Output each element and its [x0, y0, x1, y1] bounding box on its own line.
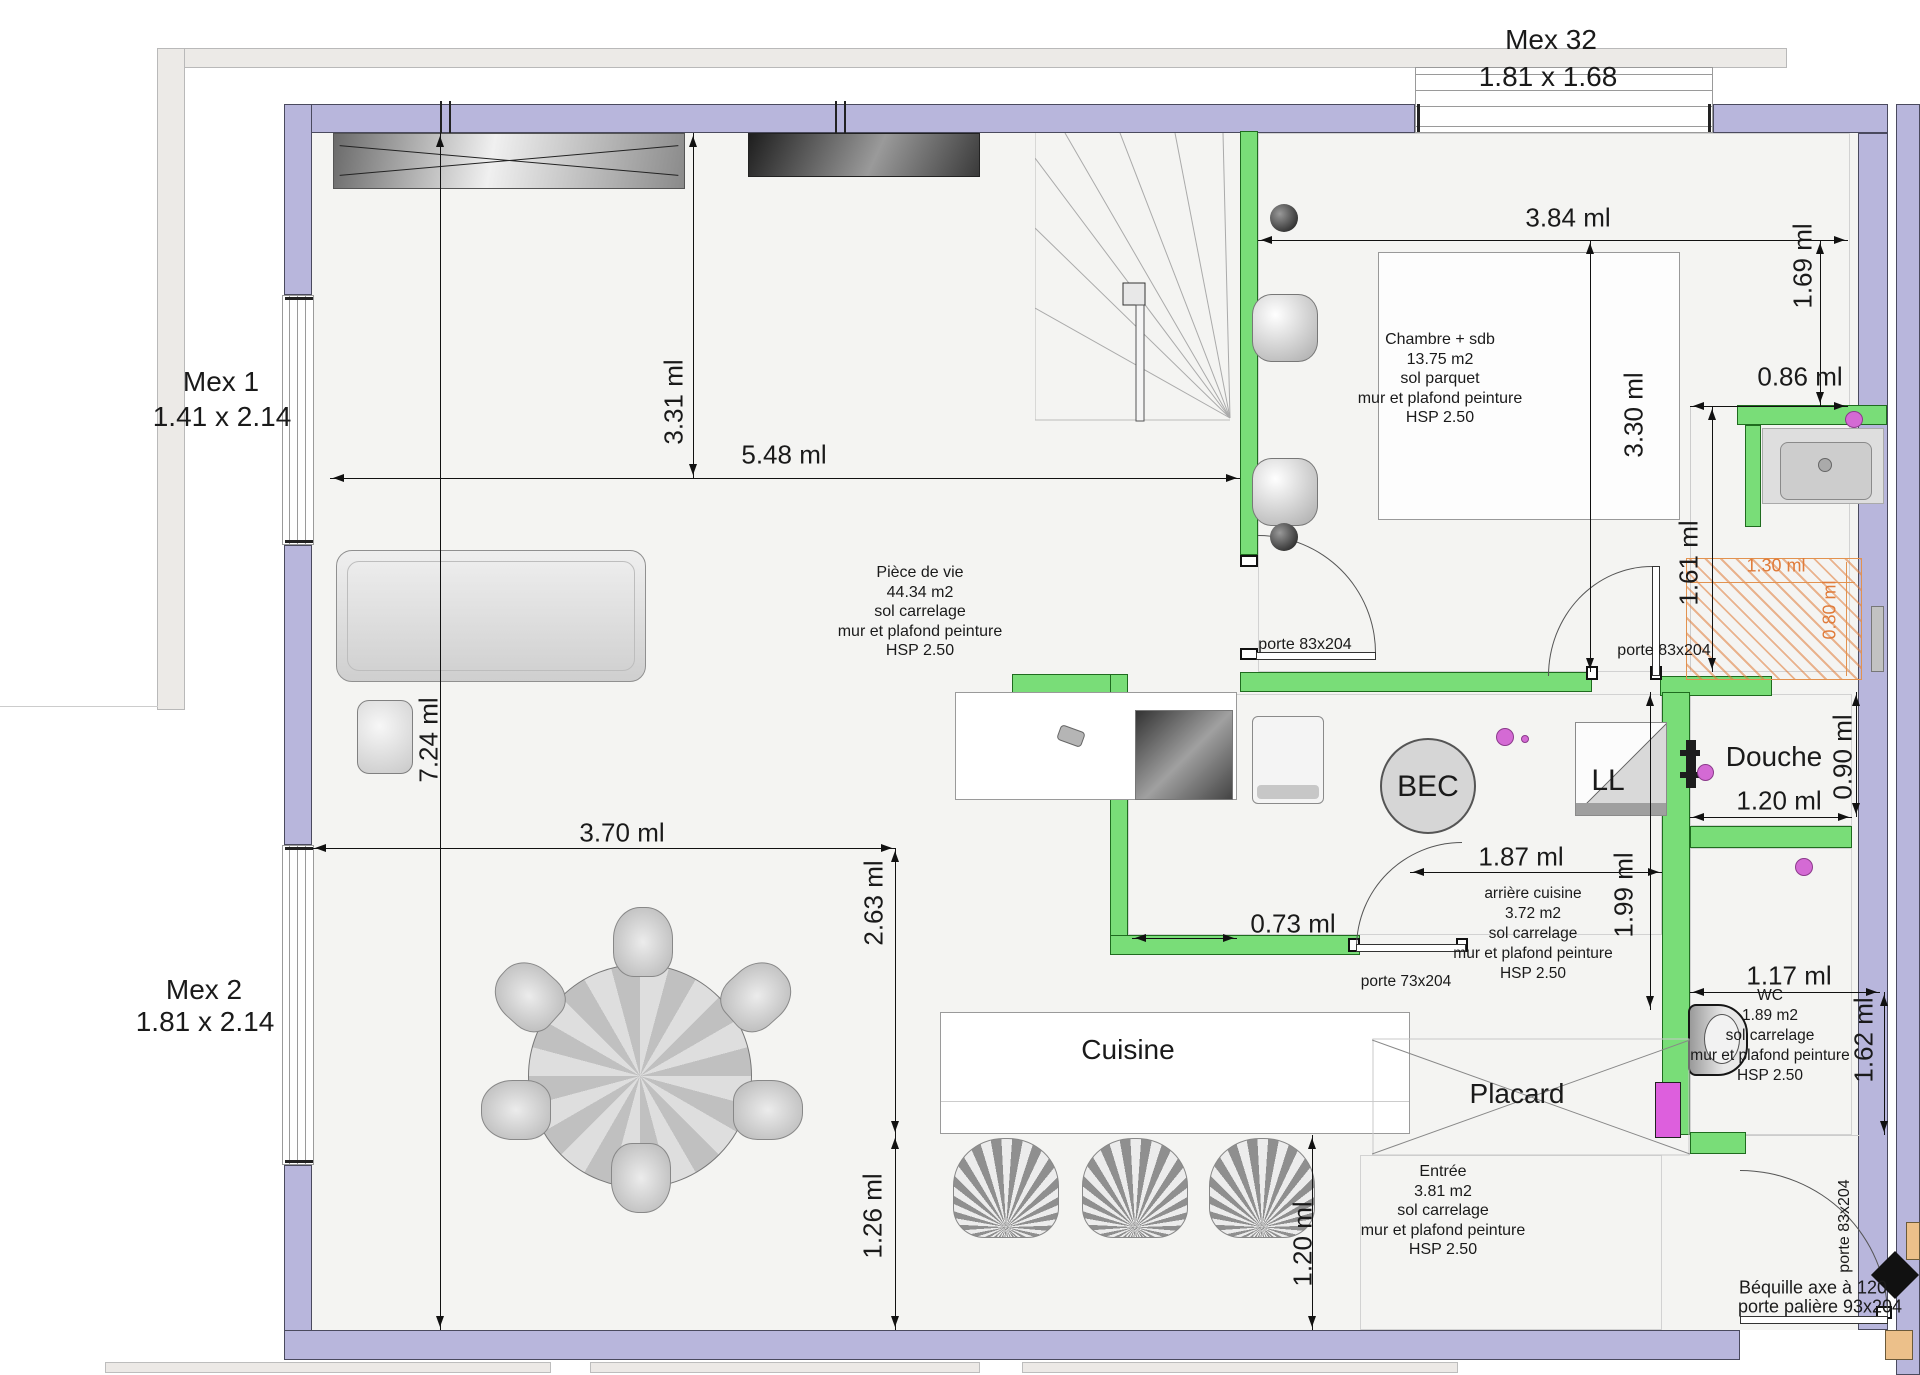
dim-label-1-62: 1.62 ml	[1849, 997, 1880, 1082]
terrace-edge-left	[157, 48, 185, 710]
room-area: 3.72 m2	[1418, 904, 1648, 924]
wall-left-middle	[284, 545, 312, 845]
dim-label-1-61: 1.61 ml	[1674, 520, 1705, 605]
window-frame-line	[297, 846, 298, 1164]
door-label-chambre: porte 83x204	[1258, 636, 1351, 654]
wall-joint-tick	[440, 101, 442, 135]
wall-joint-tick	[844, 101, 846, 135]
room-height: HSP 2.50	[1688, 1066, 1852, 1086]
dim-line-3-31	[693, 133, 694, 478]
room-finish: mur et plafond peinture	[1418, 944, 1648, 964]
slab-edge-1	[105, 1362, 551, 1373]
terrace-line-left	[0, 706, 158, 707]
dim-line-1-61	[1712, 406, 1713, 672]
dim-label-1-87: 1.87 ml	[1478, 842, 1563, 873]
dim-line-3-30	[1590, 240, 1591, 672]
wall-entree-foot	[1690, 1132, 1746, 1154]
dim-label-1-26: 1.26 ml	[858, 1173, 889, 1258]
dim-line-1-20-douche	[1690, 817, 1852, 818]
window-mex32-size: 1.81 x 1.68	[1479, 61, 1618, 93]
room-height: HSP 2.50	[1315, 408, 1565, 428]
dim-label-1-20-douche: 1.20 ml	[1736, 786, 1821, 817]
shower-dim-line-v	[1846, 562, 1847, 676]
dim-line-1-62	[1884, 992, 1885, 1135]
room-area: 13.75 m2	[1315, 350, 1565, 370]
door-note-porte-paliere: porte palière 93x204	[1738, 1297, 1902, 1318]
window-frame-line	[1416, 126, 1712, 127]
door-label-sdb: porte 83x204	[1617, 642, 1710, 660]
sofa	[336, 550, 646, 682]
sofa-seat-line	[347, 561, 635, 671]
window-frame-line	[1416, 106, 1712, 107]
room-floor: sol carrelage	[1418, 924, 1648, 944]
room-height: HSP 2.50	[1418, 964, 1648, 984]
dim-line-3-84	[1258, 240, 1848, 241]
dim-label-0-90: 0.90 ml	[1828, 714, 1859, 799]
slab-edge-2	[590, 1362, 980, 1373]
floor-plan: Mex 32 1.81 x 1.68 Mex 1 1.41 x 2.14 Mex…	[0, 0, 1920, 1375]
door-label-palier: porte 83x204	[1836, 1179, 1854, 1272]
dim-label-1-20-entree: 1.20 ml	[1288, 1201, 1319, 1286]
dim-label-2-63: 2.63 ml	[859, 860, 890, 945]
room-name: Chambre + sdb	[1315, 330, 1565, 350]
dim-label-1-69: 1.69 ml	[1788, 223, 1819, 308]
wall-top-left-segment	[284, 104, 1415, 133]
bar-stool	[1082, 1138, 1188, 1238]
door-frame-palier	[1906, 1222, 1920, 1260]
window-mex2-size: 1.81 x 2.14	[136, 1006, 275, 1038]
counter-edge-line	[941, 1101, 1409, 1102]
washing-machine-base	[1576, 803, 1666, 815]
room-area: 44.34 m2	[795, 583, 1045, 603]
dining-chair	[733, 1080, 803, 1140]
door-label-arriere: porte 73x204	[1361, 973, 1452, 991]
window-mex2-label: Mex 2	[166, 974, 242, 1006]
window-mex2	[282, 845, 314, 1165]
fixture-dot	[1795, 858, 1813, 876]
kitchen-counter	[940, 1012, 1410, 1134]
nightstand	[1252, 294, 1318, 362]
wall-right-outer	[1896, 104, 1920, 1375]
fixture-dot	[1845, 411, 1863, 428]
wall-sdb-vanity-h	[1737, 405, 1887, 425]
wall-sconce	[1270, 204, 1298, 232]
window-mex32-label: Mex 32	[1505, 24, 1597, 56]
dim-label-shower-1-30: 1.30 ml	[1746, 556, 1805, 577]
bar-stool	[953, 1138, 1059, 1238]
window-end-tick	[1708, 104, 1711, 132]
wall-joint-tick	[449, 101, 451, 135]
door-note-bequille: Béquille axe à 120	[1739, 1278, 1887, 1299]
shower-column	[1871, 606, 1884, 672]
window-end-tick	[285, 540, 313, 543]
window-mex1-label: Mex 1	[183, 366, 259, 398]
room-name: arrière cuisine	[1418, 884, 1648, 904]
wall-chambre-south	[1240, 672, 1592, 692]
room-finish: mur et plafond peinture	[1315, 389, 1565, 409]
room-block-piece-de-vie: Pièce de vie 44.34 m2 sol carrelage mur …	[795, 563, 1045, 661]
dim-line-5-48	[330, 478, 1240, 479]
zone-label-bec: BEC	[1397, 770, 1459, 804]
dim-line-1-26	[895, 1135, 896, 1330]
dining-chair	[481, 1080, 551, 1140]
tv-cabinet	[333, 133, 685, 189]
dim-label-0-73: 0.73 ml	[1250, 909, 1335, 940]
room-area: 3.81 m2	[1328, 1182, 1558, 1202]
shower-valve-tick	[1680, 750, 1700, 756]
door-threshold-palier	[1885, 1330, 1913, 1360]
window-end-tick	[285, 847, 313, 850]
dim-line-0-73	[1132, 938, 1237, 939]
room-finish: mur et plafond peinture	[1328, 1221, 1558, 1241]
wall-joint-tick	[835, 101, 837, 135]
room-block-wc: WC 1.89 m2 sol carrelage mur et plafond …	[1688, 986, 1852, 1086]
nightstand	[1252, 458, 1318, 526]
wall-sdb-vanity-v	[1745, 425, 1761, 527]
room-area: 1.89 m2	[1688, 1006, 1852, 1026]
side-table	[357, 700, 413, 774]
room-name: WC	[1688, 986, 1852, 1006]
window-end-tick	[285, 1160, 313, 1163]
dim-label-3-70: 3.70 ml	[579, 818, 664, 849]
wall-douche-south	[1690, 826, 1852, 848]
dishwasher	[1252, 716, 1324, 804]
sink-drain	[1818, 458, 1832, 472]
room-floor: sol parquet	[1315, 369, 1565, 389]
dim-label-3-84: 3.84 ml	[1525, 203, 1610, 234]
room-name: Pièce de vie	[795, 563, 1045, 583]
room-block-chambre: Chambre + sdb 13.75 m2 sol parquet mur e…	[1315, 330, 1565, 428]
room-height: HSP 2.50	[1328, 1240, 1558, 1260]
window-mex1-size: 1.41 x 2.14	[153, 401, 292, 433]
cooktop	[1135, 710, 1233, 800]
dim-label-3-31: 3.31 ml	[659, 359, 690, 444]
wall-top-right-segment	[1713, 104, 1888, 133]
dim-label-5-48: 5.48 ml	[741, 440, 826, 471]
dishwasher-front	[1257, 785, 1319, 799]
wall-right	[1858, 133, 1888, 1330]
dining-chair	[611, 1143, 671, 1213]
door-jamb	[1240, 555, 1258, 567]
room-floor: sol carrelage	[795, 602, 1045, 622]
fixture-dot	[1697, 764, 1714, 781]
room-floor: sol carrelage	[1328, 1201, 1558, 1221]
fixture-dot	[1496, 728, 1514, 746]
zone-label-placard: Placard	[1470, 1078, 1565, 1110]
dim-label-0-86: 0.86 ml	[1757, 362, 1842, 393]
window-frame-line	[289, 846, 290, 1164]
room-block-entree: Entrée 3.81 m2 sol carrelage mur et plaf…	[1328, 1162, 1558, 1260]
shower-valve	[1686, 740, 1696, 788]
window-frame-line	[297, 296, 298, 544]
wall-left-upper	[284, 104, 312, 295]
zone-label-cuisine: Cuisine	[1081, 1034, 1174, 1066]
room-block-arriere-cuisine: arrière cuisine 3.72 m2 sol carrelage mu…	[1418, 884, 1648, 984]
wall-sconce	[1270, 523, 1298, 551]
wall-bottom	[284, 1330, 1740, 1360]
room-finish: mur et plafond peinture	[1688, 1046, 1852, 1066]
dim-line-2-63	[895, 848, 896, 1135]
dim-label-shower-0-80: 0.80 ml	[1820, 580, 1841, 639]
slab-edge-3	[1022, 1362, 1458, 1373]
room-finish: mur et plafond peinture	[795, 622, 1045, 642]
dim-label-7-24: 7.24 ml	[414, 697, 445, 782]
fixture-dot	[1521, 735, 1529, 743]
room-height: HSP 2.50	[795, 641, 1045, 661]
dim-line-1-99	[1650, 692, 1651, 1010]
window-frame-line	[305, 846, 306, 1164]
zone-label-ll: LL	[1591, 764, 1624, 798]
zone-label-douche: Douche	[1726, 741, 1823, 773]
window-end-tick	[285, 297, 313, 300]
room-name: Entrée	[1328, 1162, 1558, 1182]
dining-chair	[613, 907, 673, 977]
room-floor: sol carrelage	[1688, 1026, 1852, 1046]
wall-cabinet	[748, 133, 980, 177]
stairs	[1035, 133, 1240, 423]
window-frame-line	[305, 296, 306, 544]
window-end-tick	[1417, 104, 1420, 132]
dim-label-3-30: 3.30 ml	[1619, 372, 1650, 457]
